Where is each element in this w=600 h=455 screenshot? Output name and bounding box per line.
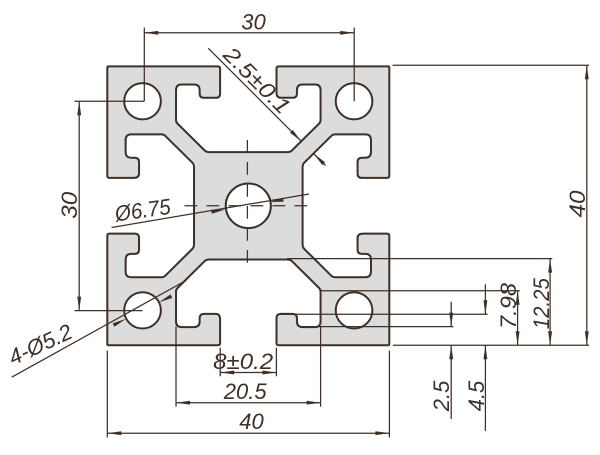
svg-text:30: 30 xyxy=(57,191,82,219)
svg-text:4.5: 4.5 xyxy=(464,380,489,411)
svg-text:20.5: 20.5 xyxy=(223,379,268,404)
svg-text:7.98: 7.98 xyxy=(496,282,521,329)
svg-text:30: 30 xyxy=(241,10,266,35)
svg-text:40: 40 xyxy=(239,409,264,434)
svg-text:12.25: 12.25 xyxy=(529,277,554,329)
svg-text:8±0.2: 8±0.2 xyxy=(213,349,273,374)
svg-text:40: 40 xyxy=(565,190,590,218)
svg-text:2.5: 2.5 xyxy=(429,380,454,412)
